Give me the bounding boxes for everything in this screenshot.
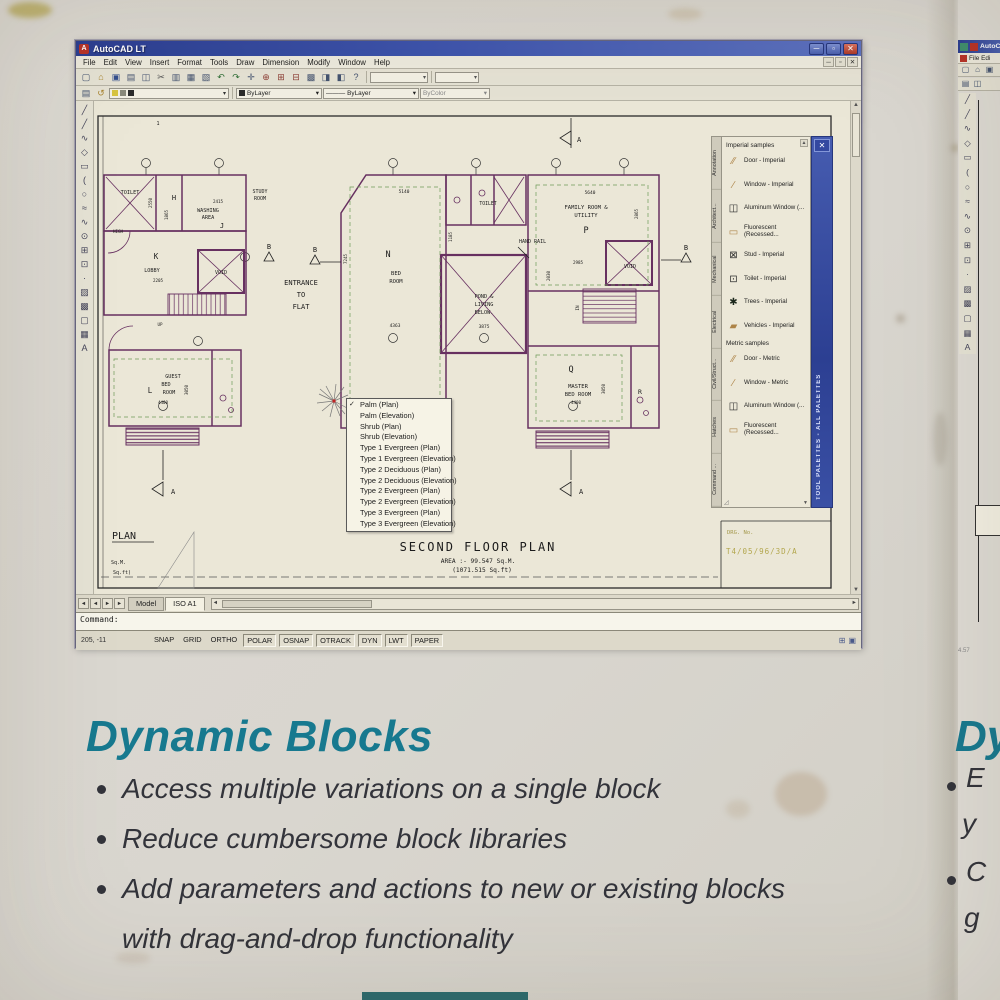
dim-label: 2030 (546, 270, 551, 281)
table-icon[interactable]: ▦ (963, 327, 971, 340)
pan-icon[interactable]: ✛ (244, 71, 258, 84)
room-label: BED (161, 382, 170, 388)
gradient-icon[interactable]: ▩ (78, 300, 92, 313)
titlebar: AutoCA (958, 40, 1000, 53)
tab-nav-arrow-icon[interactable]: ► (114, 598, 125, 609)
tab-layout-iso-a1[interactable]: ISO A1 (165, 597, 204, 611)
style-combo[interactable]: ▾ (435, 72, 479, 83)
status-toggle-button[interactable]: GRID (180, 634, 204, 647)
help-icon[interactable]: ? (349, 71, 363, 84)
dim-label: 7245 (343, 253, 348, 264)
window-icon: ∕ (726, 180, 741, 191)
draw-toolbar: ╱╱∿◇▭(○≈∿⊙⊞⊡·▨▩▢▦A (76, 101, 94, 594)
aluminum-window-icon: ◫ (726, 203, 741, 214)
insert-block-icon[interactable]: ⊞ (964, 239, 971, 252)
doc-minimize-button[interactable]: ─ (823, 57, 834, 67)
room-label: STUDY (252, 189, 267, 195)
room-label: UP (157, 322, 163, 327)
room-label: FAMILY ROOM & (564, 205, 608, 211)
check-icon (349, 400, 355, 411)
feature-bullet-fragment: E (966, 762, 985, 794)
fluorescent-icon: ▭ (726, 425, 741, 436)
aluminum-window-metric-item[interactable]: ◫ Aluminum Window (... (726, 395, 808, 419)
palette-title: TOOL PALETTES - ALL PALETTES (816, 165, 822, 500)
trees-imperial-item[interactable]: ✱ Trees - Imperial (726, 291, 808, 315)
tab-nav-arrow-icon[interactable]: ► (102, 598, 113, 609)
block-variant-option[interactable]: Shrub (Plan) (347, 422, 451, 433)
room-label: BELOW. (475, 310, 494, 316)
plan-label: Sq.ft) (113, 570, 131, 576)
room-label: HAND RAIL (519, 239, 546, 245)
room-label: TOILET (121, 190, 140, 196)
room-label: HIGH (113, 229, 124, 234)
scroll-right-icon[interactable]: ► (852, 600, 857, 606)
block-variant-option[interactable]: Type 2 Deciduous (Elevation) (347, 476, 451, 487)
toolbar-icon[interactable]: ◫ (972, 79, 983, 90)
toolbar-separator (366, 71, 367, 83)
palette-tab[interactable]: Command ... (712, 454, 721, 507)
construction-line-icon[interactable]: ╱ (78, 118, 92, 131)
palette-tab[interactable]: Electrical (712, 296, 721, 349)
dim-label: 4363 (390, 323, 401, 329)
menu-item[interactable]: Draw (232, 58, 258, 67)
layout-tab-bar: ◄◄►► Model ISO A1 ◄ ► (76, 595, 861, 612)
construction-line-icon[interactable]: ╱ (965, 108, 970, 121)
layers-toolbar: ▤◫ (958, 78, 1000, 91)
door-icon: ∕∕ (726, 354, 741, 365)
paste-icon[interactable]: ▦ (184, 71, 198, 84)
status-toggle-button[interactable]: OSNAP (279, 634, 313, 647)
fluorescent-metric-item[interactable]: ▭ Fluorescent (Recessed... (726, 419, 808, 443)
fluorescent-imperial-item[interactable]: ▭ Fluorescent (Recessed... (726, 221, 808, 245)
block-variant-option[interactable]: Type 2 Deciduous (Plan) (347, 465, 451, 476)
toilet-icon: ⊡ (726, 274, 741, 285)
layer-color-swatch (128, 90, 134, 96)
layers-properties-toolbar: ▤↺ ▾ ByLayer ▾ ——— ByLayer ▾ ByColor ▾ (76, 86, 861, 101)
bullet-dot (947, 876, 956, 885)
scroll-down-icon[interactable]: ▼ (803, 500, 808, 506)
room-label: ENTRANCE (284, 279, 318, 287)
room-label: GUEST (165, 374, 181, 380)
restore-button[interactable]: ▫ (826, 43, 841, 55)
room-letter: Q (568, 365, 573, 375)
toolbar-icon[interactable]: ▣ (984, 65, 995, 76)
autocad-app-icon (970, 43, 978, 51)
sheet-frame-edge (978, 100, 979, 622)
room-letter: R (638, 388, 642, 396)
toolbar-separator (232, 87, 233, 99)
dim-label: 3050 (601, 383, 606, 394)
menu-item[interactable]: Help (370, 58, 394, 67)
menu-item[interactable]: File Edi (969, 55, 990, 62)
titlebar[interactable]: A AutoCAD LT ─ ▫ ✕ (76, 41, 861, 56)
room-letter: N (385, 250, 390, 260)
palette-tab[interactable]: Hatches (712, 401, 721, 454)
tool-palettes-panel: AnnotationArchitect...MechanicalElectric… (711, 136, 833, 508)
coordinates-readout: 205, -11 (81, 637, 147, 644)
room-label: TO (297, 291, 305, 299)
draw-toolbar: ╱╱∿◇▭(○≈∿⊙⊞⊡·▨▩▢▦A (959, 93, 976, 354)
rectangle-icon[interactable]: ▭ (963, 151, 971, 164)
ellipse-icon[interactable]: ⊙ (78, 230, 92, 243)
room-letter: L (148, 386, 153, 395)
status-toggle-button[interactable]: OTRACK (316, 634, 355, 647)
comm-center-icon[interactable]: ▣ (848, 636, 856, 645)
room-letter: H (172, 194, 176, 202)
room-label: ROOM (254, 196, 266, 202)
layer-on-swatch (112, 90, 118, 96)
table-icon[interactable]: ▦ (78, 328, 92, 341)
menu-item[interactable]: File (79, 58, 100, 67)
palette-group-header: Metric samples (726, 340, 808, 347)
hatch-icon[interactable]: ▨ (963, 283, 971, 296)
dim-label: 2550 (148, 197, 153, 208)
room-label: AREA (202, 215, 215, 221)
color-combo[interactable]: ByLayer ▾ (236, 88, 322, 99)
aluminum-window-icon: ◫ (726, 401, 741, 412)
window-title: AutoCA (980, 43, 1000, 50)
revision-cloud-icon[interactable]: ≈ (965, 195, 970, 208)
feature-bullet-fragment: y (962, 808, 976, 840)
region-icon[interactable]: ▢ (78, 314, 92, 327)
feature-bullet: Access multiple variations on a single b… (90, 764, 790, 814)
room-letter: P (583, 226, 588, 236)
tab-nav-arrow-icon[interactable]: ◄ (78, 598, 89, 609)
menu-item[interactable]: Edit (100, 58, 121, 67)
status-toggle-button[interactable]: POLAR (243, 634, 276, 647)
plotstyle-combo[interactable]: ByColor ▾ (420, 88, 490, 99)
doc-icon (960, 55, 967, 62)
zoom-previous-icon[interactable]: ⊟ (289, 71, 303, 84)
doc-restore-button[interactable]: ▫ (835, 57, 846, 67)
section-heading: Dy (955, 712, 1000, 762)
room-label: IN (575, 305, 580, 311)
dim-label: 4400 (571, 400, 582, 405)
feature-bullet-fragment: g (964, 902, 980, 934)
minimize-button[interactable]: ─ (809, 43, 824, 55)
titleblock-label: DRG. No. (727, 530, 754, 536)
paper-stain (8, 2, 52, 18)
hatch-icon[interactable]: ▨ (78, 286, 92, 299)
plot-icon[interactable]: ▤ (124, 71, 138, 84)
plan-title: SECOND FLOOR PLAN (400, 540, 557, 554)
palette-body: ▲ Imperial samples ∕∕ Door - Imperial ∕ … (722, 136, 811, 508)
block-variant-option[interactable]: Palm (Elevation) (347, 411, 451, 422)
tab-model[interactable]: Model (128, 597, 164, 611)
bullet-dot (947, 782, 956, 791)
open-icon[interactable]: ⌂ (94, 71, 108, 84)
drawing-area: ╱╱∿◇▭(○≈∿⊙⊞⊡·▨▩▢▦A (76, 101, 861, 595)
spline-icon[interactable]: ∿ (964, 210, 971, 223)
scroll-up-icon[interactable]: ▲ (851, 102, 861, 108)
dim-label: 2985 (573, 260, 584, 265)
plan-label: PLAN (112, 531, 136, 542)
menu-item[interactable]: Tools (206, 58, 232, 67)
block-variant-option[interactable]: Shrub (Elevation) (347, 432, 451, 443)
section-marker: A (579, 488, 584, 496)
point-icon[interactable]: · (966, 268, 969, 281)
room-label: ROOM (389, 279, 403, 285)
section-marker: B (313, 246, 317, 254)
doc-close-button[interactable]: ✕ (847, 57, 858, 67)
vertical-scrollbar[interactable]: ▲ ▼ (850, 101, 861, 594)
app-icon (960, 43, 968, 51)
stud-imperial-item[interactable]: ⊠ Stud - Imperial (726, 244, 808, 268)
section-marker: B (267, 243, 271, 251)
room-letter: K (154, 252, 159, 261)
tool-palettes-icon[interactable]: ◧ (334, 71, 348, 84)
spline-icon[interactable]: ∿ (78, 216, 92, 229)
layer-previous-icon[interactable]: ↺ (94, 87, 108, 100)
copy-icon[interactable]: ▥ (169, 71, 183, 84)
save-icon[interactable]: ▣ (109, 71, 123, 84)
window-metric-item[interactable]: ∕ Window - Metric (726, 372, 808, 396)
grid-number: 1 (156, 121, 159, 127)
room-label: BED (391, 271, 401, 277)
fluorescent-icon: ▭ (726, 227, 741, 238)
palette-close-icon[interactable]: ✕ (814, 139, 830, 152)
layer-freeze-swatch (120, 90, 126, 96)
coordinates-fragment: 4.57 (958, 648, 970, 654)
gradient-icon[interactable]: ▩ (963, 297, 971, 310)
block-variant-option[interactable]: Type 2 Evergreen (Plan) (347, 486, 451, 497)
status-bar: 205, -11 SNAPGRIDORTHOPOLAROSNAPOTRACKDY… (76, 631, 861, 650)
tab-nav-arrow-icon[interactable]: ◄ (90, 598, 101, 609)
window-imperial-item[interactable]: ∕ Window - Imperial (726, 174, 808, 198)
titleblock-drawing-number: T4/05/96/3D/A (726, 547, 798, 556)
room-label: LIVING (475, 302, 494, 308)
paper-stain (668, 8, 702, 20)
text-icon[interactable]: A (78, 342, 92, 355)
zoom-realtime-icon[interactable]: ⊕ (259, 71, 273, 84)
status-toggle-button[interactable]: SNAP (151, 634, 177, 647)
circle-icon[interactable]: ○ (78, 188, 92, 201)
menu-item[interactable]: View (121, 58, 146, 67)
block-variant-option[interactable]: Type 1 Evergreen (Plan) (347, 443, 451, 454)
polyline-icon[interactable]: ∿ (964, 122, 971, 135)
dim-label: 1185 (448, 231, 453, 242)
revision-cloud-icon[interactable]: ≈ (78, 202, 92, 215)
autocad-app-icon: A (79, 44, 89, 54)
palette-tabs: AnnotationArchitect...MechanicalElectric… (711, 136, 722, 508)
palette-tab[interactable]: Civil/Struct... (712, 348, 721, 401)
make-block-icon[interactable]: ⊡ (78, 258, 92, 271)
stud-icon: ⊠ (726, 250, 741, 261)
polyline-icon[interactable]: ∿ (78, 132, 92, 145)
point-icon[interactable]: · (78, 272, 92, 285)
palette-tab[interactable]: Mechanical (712, 243, 721, 296)
drawing-canvas[interactable]: 1 TOILET 2550 H 1865 WASHING AREA 2415 J… (94, 101, 861, 594)
menu-item[interactable]: Window (334, 58, 370, 67)
room-label: LOBBY (144, 268, 160, 274)
polygon-icon[interactable]: ◇ (964, 137, 971, 150)
command-line-input[interactable]: Command: (76, 612, 861, 631)
plan-label: Sq.M. (111, 560, 126, 566)
text-icon[interactable]: A (965, 341, 971, 354)
room-label: MASTER (568, 384, 589, 390)
vehicle-icon: ▰ (726, 321, 741, 332)
circle-icon[interactable]: ○ (965, 181, 970, 194)
redo-icon[interactable]: ↷ (229, 71, 243, 84)
horizontal-scrollbar[interactable]: ◄ ► (211, 598, 859, 610)
toolbar-icon[interactable]: ▢ (960, 65, 971, 76)
plan-area: AREA :- 99.547 Sq.M. (441, 558, 516, 565)
section-marker: A (171, 488, 176, 496)
status-toggle-button[interactable]: DYN (358, 634, 382, 647)
autocad-window: A AutoCAD LT ─ ▫ ✕ FileEditViewInsertFor… (75, 40, 862, 648)
dim-label: 2865 (634, 208, 639, 219)
undo-icon[interactable]: ↶ (214, 71, 228, 84)
layer-properties-icon[interactable]: ▤ (79, 87, 93, 100)
section-heading: Dynamic Blocks (86, 712, 433, 762)
scroll-up-icon[interactable]: ▲ (800, 139, 808, 147)
status-toggle-button[interactable]: ORTHO (208, 634, 241, 647)
plot-preview-icon[interactable]: ◫ (139, 71, 153, 84)
paper-stain (896, 314, 905, 323)
line-icon[interactable]: ╱ (965, 93, 970, 106)
standard-toolbar: ▢⌂▣▤◫✂▥▦▧↶↷✛⊕⊞⊟▩◨◧? ▾ ▾ (76, 69, 861, 86)
feature-bullet-fragment: C (966, 856, 986, 888)
toolbar-icon[interactable]: ▤ (960, 79, 971, 90)
next-page-edge (362, 992, 528, 1000)
block-variant-option[interactable]: Type 1 Evergreen (Elevation) (347, 454, 451, 465)
dim-label: 5140 (399, 189, 410, 195)
room-label: UTILITY (574, 213, 598, 219)
polygon-icon[interactable]: ◇ (78, 146, 92, 159)
vehicles-imperial-item[interactable]: ▰ Vehicles - Imperial (726, 315, 808, 339)
room-label: WASHING (197, 208, 219, 214)
dim-label: 5640 (585, 190, 596, 196)
section-marker: B (684, 244, 688, 252)
menu-item[interactable]: Insert (146, 58, 174, 67)
toolbar-separator (431, 71, 432, 83)
linetype-combo[interactable]: ——— ByLayer ▾ (323, 88, 419, 99)
designcenter-icon[interactable]: ◨ (319, 71, 333, 84)
match-properties-icon[interactable]: ▧ (199, 71, 213, 84)
door-icon: ∕∕ (726, 156, 741, 167)
feature-bullet: Add parameters and actions to new or exi… (90, 864, 790, 964)
tree-icon: ✱ (726, 297, 741, 308)
palette-title-bar[interactable]: ✕ TOOL PALETTES - ALL PALETTES (811, 136, 833, 508)
color-swatch (239, 90, 245, 96)
door-imperial-item[interactable]: ∕∕ Door - Imperial (726, 150, 808, 174)
dim-label: 2415 (213, 199, 224, 204)
toolbar-lock-icon[interactable]: ⊞ (839, 636, 846, 645)
menu-item[interactable]: Format (173, 58, 206, 67)
palette-tab[interactable]: Annotation (712, 137, 721, 190)
standard-toolbar: ▢⌂▣ (958, 64, 1000, 77)
insert-block-icon[interactable]: ⊞ (78, 244, 92, 257)
status-toggle-button[interactable]: PAPER (411, 634, 444, 647)
scrollbar-thumb[interactable] (222, 600, 372, 608)
room-label: BED ROOM (565, 392, 592, 398)
dim-label: 3050 (184, 384, 189, 395)
room-label: VOID (215, 270, 227, 276)
dim-label: 3875 (479, 324, 490, 330)
scroll-down-icon[interactable]: ▼ (851, 587, 861, 593)
cut-icon[interactable]: ✂ (154, 71, 168, 84)
block-variant-option[interactable]: Type 3 Evergreen (Elevation) (347, 519, 451, 530)
palette-tab[interactable]: Architect... (712, 190, 721, 243)
titleblock-fragment (975, 505, 1000, 536)
ellipse-icon[interactable]: ⊙ (964, 224, 971, 237)
feature-bullet: Reduce cumbersome block libraries (90, 814, 790, 864)
toolbar-icon[interactable]: ⌂ (972, 65, 983, 76)
zoom-window-icon[interactable]: ⊞ (274, 71, 288, 84)
dim-label: 1865 (164, 209, 169, 220)
block-variant-option[interactable]: Palm (Plan) (347, 400, 451, 411)
window-title: AutoCAD LT (93, 44, 146, 54)
palette-resize-grip[interactable]: ◿ (724, 499, 729, 506)
window-icon: ∕ (726, 378, 741, 389)
block-variant-option[interactable]: Type 2 Evergreen (Elevation) (347, 497, 451, 508)
line-icon[interactable]: ╱ (78, 104, 92, 117)
room-label: POND & (475, 294, 495, 300)
feature-bullet-list: Access multiple variations on a single b… (90, 764, 790, 964)
qnew-icon[interactable]: ▢ (79, 71, 93, 84)
status-toggle-button[interactable]: LWT (385, 634, 408, 647)
arc-icon[interactable]: ( (966, 166, 969, 179)
room-letter: J (220, 222, 224, 230)
right-page-panel: AutoCA File Edi ▢⌂▣ ▤◫ ╱╱∿◇▭(○≈∿⊙⊞⊡·▨▩▢▦… (958, 0, 1000, 1000)
block-variant-option[interactable]: Type 3 Evergreen (Plan) (347, 508, 451, 519)
layer-combo[interactable]: ▾ (109, 88, 229, 99)
menubar: File Edi (958, 53, 1000, 64)
dim-label: 4400 (158, 400, 169, 405)
menu-item[interactable]: Modify (303, 58, 334, 67)
scroll-left-icon[interactable]: ◄ (213, 600, 218, 606)
room-label: VOID (624, 264, 636, 270)
door-metric-item[interactable]: ∕∕ Door - Metric (726, 348, 808, 372)
palm-block-sketch[interactable] (317, 384, 349, 417)
palette-group-header: Imperial samples (726, 142, 808, 149)
make-block-icon[interactable]: ⊡ (964, 254, 971, 267)
arc-icon[interactable]: ( (78, 174, 92, 187)
properties-icon[interactable]: ▩ (304, 71, 318, 84)
page-fold-shadow (926, 0, 958, 1000)
room-label: ROOM (163, 390, 176, 396)
dim-label: 2205 (153, 278, 164, 283)
dynamic-block-dropdown: Palm (Plan) Palm (Elevation) Shrub (Plan… (346, 398, 452, 532)
toilet-imperial-item[interactable]: ⊡ Toilet - Imperial (726, 268, 808, 292)
brochure-page: A AutoCAD LT ─ ▫ ✕ FileEditViewInsertFor… (0, 0, 1000, 1000)
grip-point[interactable] (333, 400, 336, 403)
section-marker: A (577, 136, 582, 144)
room-label: TOILET (479, 201, 496, 207)
menu-item[interactable]: Dimension (258, 58, 303, 67)
menubar: FileEditViewInsertFormatToolsDrawDimensi… (76, 56, 861, 69)
scrollbar-thumb[interactable] (852, 113, 860, 157)
close-button[interactable]: ✕ (843, 43, 858, 55)
rectangle-icon[interactable]: ▭ (78, 160, 92, 173)
workspace-combo[interactable]: ▾ (370, 72, 428, 83)
region-icon[interactable]: ▢ (963, 312, 971, 325)
aluminum-window-imperial-item[interactable]: ◫ Aluminum Window (... (726, 197, 808, 221)
plan-area: (1071.515 Sq.ft) (452, 567, 512, 574)
room-label: FLAT (293, 303, 311, 311)
